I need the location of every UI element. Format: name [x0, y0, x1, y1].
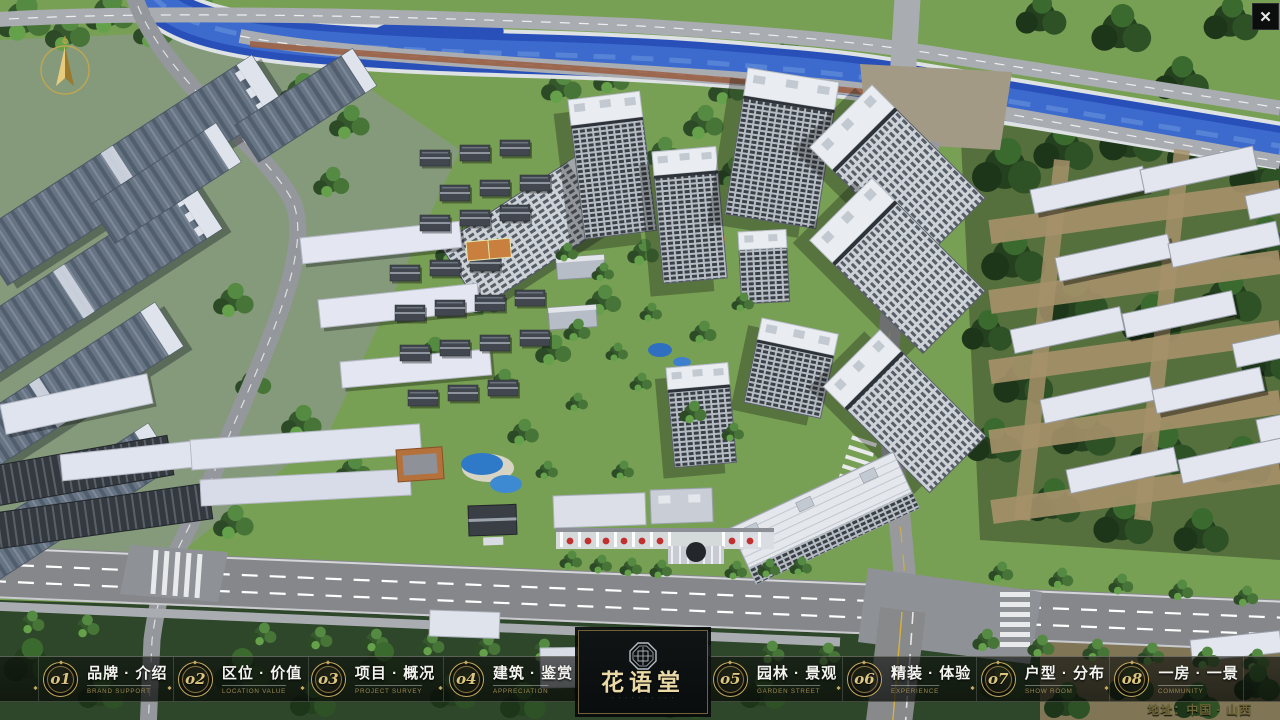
brand-seal-icon [629, 642, 657, 670]
menu-item-decor-experience[interactable]: o6 精装 · 体验 EXPERIENCE [842, 657, 976, 701]
menu-label-zh: 一房 · 一景 [1158, 662, 1238, 683]
menu-label-zh: 户型 · 分布 [1025, 662, 1105, 683]
menu-label-zh: 区位 · 价值 [222, 662, 302, 683]
menu-label-en: BRAND SUPPORT [87, 685, 151, 694]
menu-item-garden-landscape[interactable]: o5 园林 · 景观 GARDEN STREET [708, 657, 842, 701]
menu-item-room-view[interactable]: o8 一房 · 一景 COMMUNITY [1109, 657, 1244, 701]
menu-item-brand-intro[interactable]: o1 品牌 · 介绍 BRAND SUPPORT [38, 657, 173, 701]
menu-label-zh: 精装 · 体验 [891, 662, 971, 683]
brand-tagline: · · · · · · · · · · [611, 696, 674, 702]
menu-item-architecture[interactable]: o4 建筑 · 鉴赏 APPRECIATION [443, 657, 578, 701]
menu-number-badge: o5 [713, 662, 748, 697]
menu-item-location-value[interactable]: o2 区位 · 价值 LOCATION VALUE [173, 657, 308, 701]
menu-label-zh: 品牌 · 介绍 [87, 662, 167, 683]
brand-name: 花语堂 [601, 671, 685, 694]
menu-number-badge: o7 [981, 662, 1016, 697]
menu-label-en: EXPERIENCE [891, 685, 939, 694]
site-plan-3d-view[interactable] [0, 0, 1280, 720]
menu-group-left: o1 品牌 · 介绍 BRAND SUPPORT o2 区位 · 价值 LOCA… [0, 657, 578, 701]
menu-number-badge: o8 [1114, 662, 1149, 697]
menu-number-badge: o4 [449, 662, 484, 697]
menu-label-en: SHOW ROOM [1025, 685, 1073, 694]
menu-label-en: LOCATION VALUE [222, 685, 286, 694]
menu-number-badge: o3 [311, 662, 346, 697]
menu-label-en: GARDEN STREET [757, 685, 820, 694]
menu-item-unit-distribution[interactable]: o7 户型 · 分布 SHOW ROOM [976, 657, 1110, 701]
presentation-window: ✕ o1 品牌 · 介绍 BRAND SUPPORT o2 区位 · 价值 LO… [0, 0, 1280, 720]
menu-label-en: COMMUNITY [1158, 685, 1203, 694]
menu-label-zh: 项目 · 概况 [355, 662, 435, 683]
menu-number-badge: o2 [178, 662, 213, 697]
menu-label-zh: 建筑 · 鉴赏 [493, 662, 573, 683]
menu-label-en: APPRECIATION [493, 685, 548, 694]
close-icon: ✕ [1259, 8, 1272, 26]
logo-panel[interactable]: 花语堂 · · · · · · · · · · [578, 630, 708, 714]
menu-label-en: PROJECT SURVEY [355, 685, 422, 694]
menu-number-badge: o6 [847, 662, 882, 697]
menu-label-zh: 园林 · 景观 [757, 662, 837, 683]
menu-item-project-survey[interactable]: o3 项目 · 概况 PROJECT SURVEY [308, 657, 443, 701]
project-address: 地址：中国 · 山西 [1147, 701, 1252, 718]
menu-number-badge: o1 [43, 662, 78, 697]
close-button[interactable]: ✕ [1252, 3, 1279, 30]
menu-group-right: o5 园林 · 景观 GARDEN STREET o6 精装 · 体验 EXPE… [708, 657, 1280, 701]
